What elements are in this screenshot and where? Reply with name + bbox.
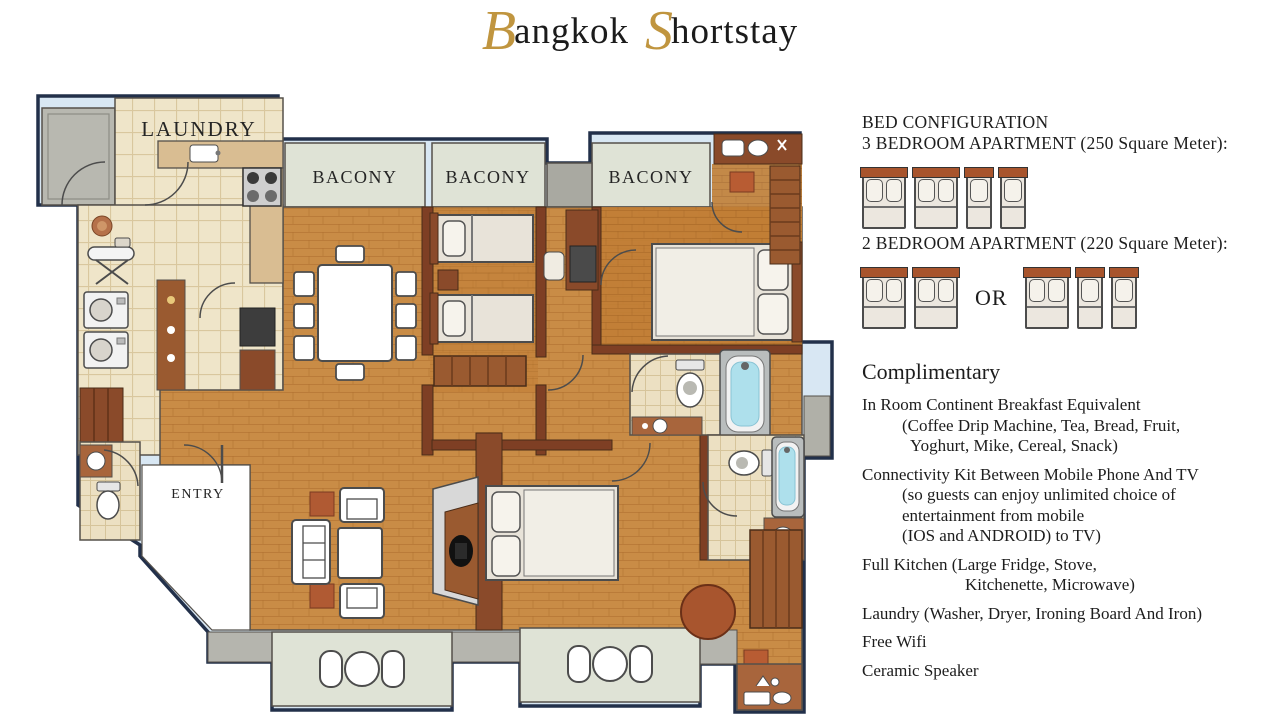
apartment-2br-title: 2 BEDROOM APARTMENT (220 Square Meter):: [862, 233, 1280, 254]
round-table-icon: [681, 585, 735, 639]
poster: BangkokShortstay: [0, 0, 1280, 720]
single-bed-icon: [966, 171, 992, 229]
amenity-line: Connectivity Kit Between Mobile Phone An…: [862, 465, 1280, 486]
balcony1-label: BACONY: [312, 167, 397, 187]
apartment-3br-title: 3 BEDROOM APARTMENT (250 Square Meter):: [862, 133, 1280, 154]
double-bed-icon: [1025, 271, 1069, 329]
ac-ledge: [42, 108, 115, 205]
ottoman-square: [730, 172, 754, 192]
bed-group: [1025, 267, 1137, 329]
laundry-label: LAUNDRY: [141, 117, 257, 141]
double-bed-icon: [486, 486, 618, 580]
dryer-icon: [84, 332, 128, 368]
toilet-icon: [676, 360, 704, 407]
complimentary-heading: Complimentary: [862, 359, 1280, 385]
sink-icon: [653, 419, 667, 433]
amenity-line: (Coffee Drip Machine, Tea, Bread, Fruit,: [902, 416, 1280, 437]
toilet-icon: [729, 450, 772, 476]
bottom-balcony-2: [520, 628, 700, 702]
bed-row-3br: [862, 167, 1280, 229]
amenity-line: In Room Continent Breakfast Equivalent: [862, 395, 1280, 416]
bed-group: [862, 167, 1026, 229]
tv-icon: [570, 246, 596, 282]
single-bed-icon: [1111, 271, 1137, 329]
ledge-gray-2: [452, 632, 520, 662]
washer-icon: [84, 292, 128, 328]
amenity-line: (so guests can enjoy unlimited choice of: [902, 485, 1280, 506]
kitchen-sink-icon: [190, 145, 218, 162]
chair-icon: [544, 252, 564, 280]
bathtub-icon: [720, 350, 770, 438]
balcony3-label: BACONY: [608, 167, 693, 187]
amenity-line: Yoghurt, Mike, Cereal, Snack): [910, 436, 1280, 457]
side-table-icon: [310, 492, 334, 516]
bench-icon: [434, 356, 526, 386]
coffee-table-icon: [338, 528, 382, 578]
bathroom-3: [737, 664, 802, 710]
entry-label: ENTRY: [171, 487, 224, 502]
ledge-gray-right: [804, 396, 830, 456]
armchair-icon: [340, 584, 384, 618]
fridge-icon: [240, 308, 275, 346]
sink-icon: [748, 140, 768, 156]
nightstand-icon: [438, 270, 458, 290]
stove-icon: [243, 168, 281, 206]
double-bed-icon: [862, 171, 906, 229]
amenity-line: Laundry (Washer, Dryer, Ironing Board An…: [862, 604, 1280, 625]
amenity-line: (IOS and ANDROID) to TV): [902, 526, 1280, 547]
bed-configuration-heading: BED CONFIGURATION: [862, 112, 1280, 133]
armchair-icon: [340, 488, 384, 522]
bathtub-icon: [772, 437, 804, 517]
amenity-line: Full Kitchen (Large Fridge, Stove,: [862, 555, 1280, 576]
single-bed-icon: [1000, 171, 1026, 229]
double-bed-icon: [914, 171, 958, 229]
tv-console-icon: [433, 477, 478, 605]
single-bed-icon: [1077, 271, 1103, 329]
side-table-icon: [310, 584, 334, 608]
amenity-line: Free Wifi: [862, 632, 1280, 653]
powder-room: [80, 442, 140, 540]
amenity-line: entertainment from mobile: [902, 506, 1280, 527]
or-label: OR: [975, 285, 1008, 311]
single-bed-icon: [430, 213, 533, 264]
amenity-line: Ceramic Speaker: [862, 661, 1280, 682]
closet-icon: [80, 388, 123, 442]
double-bed-icon: [862, 271, 906, 329]
toilet-icon: [97, 482, 120, 519]
amenity-line: Kitchenette, Microwave): [965, 575, 1280, 596]
sink-icon: [722, 140, 744, 156]
info-panel: BED CONFIGURATION 3 BEDROOM APARTMENT (2…: [862, 112, 1280, 681]
bottom-balcony-1: [272, 632, 452, 706]
complimentary-list: In Room Continent Breakfast Equivalent(C…: [862, 395, 1280, 681]
wardrobe-icon: [750, 530, 802, 628]
ledge-gray-1: [208, 632, 272, 662]
double-bed-icon: [914, 271, 958, 329]
balcony2-label: BACONY: [445, 167, 530, 187]
bathroom-1: [630, 350, 770, 438]
sofa-icon: [292, 520, 330, 584]
single-bed-icon: [430, 293, 533, 344]
bed-group: [862, 267, 958, 329]
bed-row-2br: OR: [862, 267, 1280, 329]
